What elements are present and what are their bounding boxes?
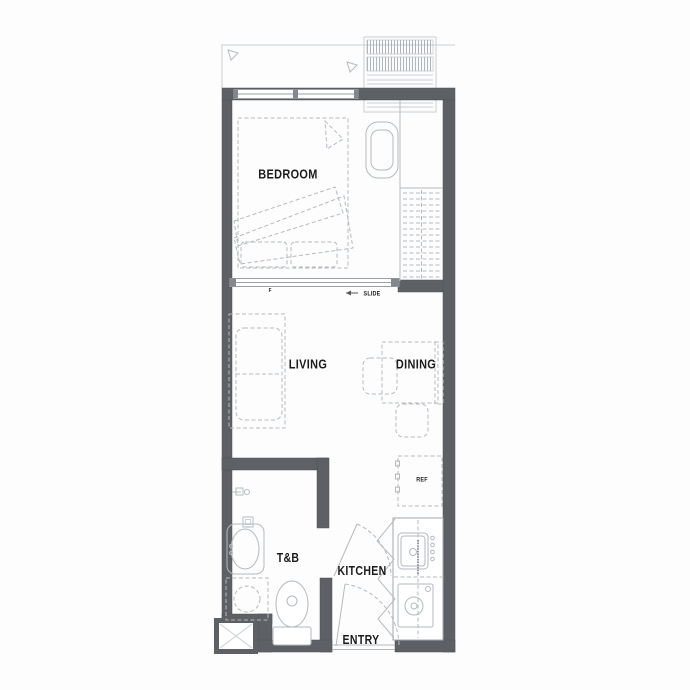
wall-ledge (435, 342, 443, 404)
pillow (291, 242, 337, 267)
utility-shaft (217, 621, 256, 652)
room-label-entry: ENTRY (343, 633, 380, 647)
blanket-fold (325, 121, 343, 149)
blanket (234, 196, 353, 264)
wall-bottom-right (395, 640, 455, 652)
desk-chair (366, 122, 398, 178)
toilet (273, 581, 311, 645)
room-label-living: LIVING (289, 357, 327, 372)
lavatory-sink (227, 524, 264, 574)
slope-arrow-icon (347, 62, 357, 72)
kitchen-counter (377, 518, 443, 640)
wall-tnb-right-upper (317, 458, 329, 528)
dining-chair (396, 404, 428, 437)
slope-arrow-icon (228, 50, 238, 60)
wall-partition-stub (398, 280, 443, 292)
blanket (234, 187, 343, 246)
floor-plan: BEDROOM LIVING DINING T&B KITCHEN ENTRY … (0, 0, 690, 690)
wall-tnb-top (222, 458, 328, 470)
annotation-refrigerator: REF (416, 477, 427, 484)
sofa (229, 314, 285, 428)
floor-plan-drawing (0, 0, 690, 690)
shower-valve (232, 488, 250, 495)
wall-right (443, 100, 455, 652)
room-label-bedroom: BEDROOM (258, 167, 317, 182)
room-label-kitchen: KITCHEN (337, 564, 386, 578)
slide-arrow-icon (346, 291, 358, 296)
floor-drain (243, 517, 253, 527)
room-label-dining: DINING (396, 357, 436, 372)
dining-table (382, 342, 438, 403)
bed (234, 118, 353, 268)
annotation-slide: SLIDE (364, 291, 381, 298)
break-line (377, 519, 395, 638)
washing-machine-provision (226, 578, 268, 620)
bedroom-window (234, 90, 358, 99)
dining-chair (363, 358, 397, 394)
wardrobe (403, 190, 440, 280)
balcony-ledge (222, 37, 455, 112)
annotation-partition-mark: F (269, 288, 272, 294)
room-label-toilet-bath: T&B (277, 551, 300, 565)
